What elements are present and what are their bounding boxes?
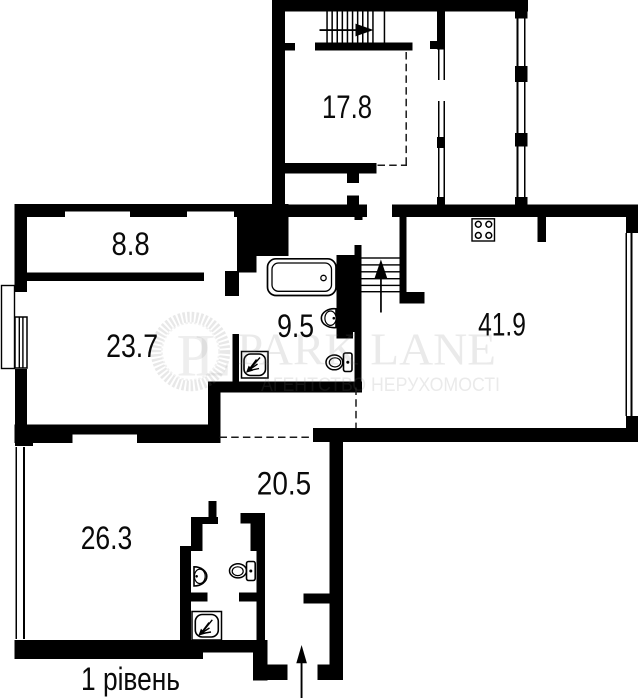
svg-text:АГЕНТСТВО НЕРУХОМОСТІ: АГЕНТСТВО НЕРУХОМОСТІ [261,375,500,396]
svg-text:8.8: 8.8 [111,226,149,262]
svg-text:9.5: 9.5 [277,308,314,344]
svg-text:1 рівень: 1 рівень [81,661,180,697]
svg-text:17.8: 17.8 [322,89,372,125]
svg-text:41.9: 41.9 [478,307,526,343]
svg-text:26.3: 26.3 [81,520,133,556]
svg-text:23.7: 23.7 [106,328,158,364]
svg-text:PARK LANE: PARK LANE [237,324,496,375]
svg-text:L: L [195,323,232,389]
svg-text:20.5: 20.5 [257,466,311,502]
